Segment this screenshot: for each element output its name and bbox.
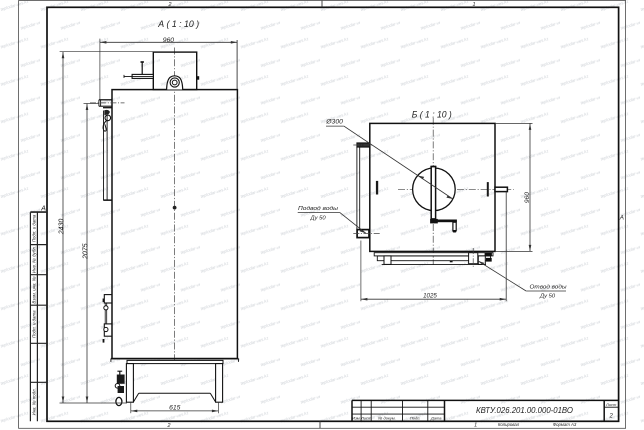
svg-text:Формат А3: Формат А3 (553, 422, 577, 427)
svg-text:Подп. и дата: Подп. и дата (32, 310, 37, 338)
svg-text:Подп.: Подп. (410, 416, 421, 421)
svg-text:1025: 1025 (423, 292, 437, 299)
svg-text:Ø300: Ø300 (325, 119, 343, 126)
svg-text:А ( 1 : 10 ): А ( 1 : 10 ) (157, 18, 199, 29)
svg-text:А: А (619, 215, 624, 222)
svg-text:2: 2 (168, 2, 172, 8)
svg-text:2: 2 (609, 414, 614, 420)
svg-text:615: 615 (169, 404, 181, 411)
svg-text:Дата: Дата (430, 416, 442, 421)
svg-text:Подвод воды: Подвод воды (298, 206, 339, 212)
svg-text:Подп. и дата: Подп. и дата (32, 214, 37, 242)
svg-text:960: 960 (163, 37, 175, 44)
svg-text:Копировал: Копировал (498, 422, 520, 427)
svg-text:Ду 50: Ду 50 (309, 216, 326, 222)
svg-text:Инв. № подл.: Инв. № подл. (32, 388, 37, 415)
svg-text:Лист: Лист (360, 416, 372, 421)
svg-text:Взам. инв. №: Взам. инв. № (32, 276, 37, 303)
svg-text:Изм.: Изм. (352, 416, 361, 421)
svg-text:Отвод воды: Отвод воды (530, 285, 568, 291)
svg-text:2: 2 (167, 423, 171, 429)
svg-text:Инв. № дубл.: Инв. № дубл. (32, 246, 37, 273)
svg-text:2075: 2075 (83, 243, 90, 260)
svg-text:2430: 2430 (59, 219, 66, 236)
svg-text:1: 1 (474, 423, 477, 429)
svg-text:Ду 50: Ду 50 (539, 294, 556, 300)
svg-text:Лист: Лист (605, 402, 617, 407)
svg-text:Б ( 1 : 10 ): Б ( 1 : 10 ) (412, 108, 452, 119)
svg-text:№ докум.: № докум. (378, 416, 396, 421)
svg-text:960: 960 (524, 192, 531, 203)
svg-text:1: 1 (473, 2, 476, 8)
svg-text:КВТУ.026.201.00.000-01ВО: КВТУ.026.201.00.000-01ВО (476, 405, 573, 415)
